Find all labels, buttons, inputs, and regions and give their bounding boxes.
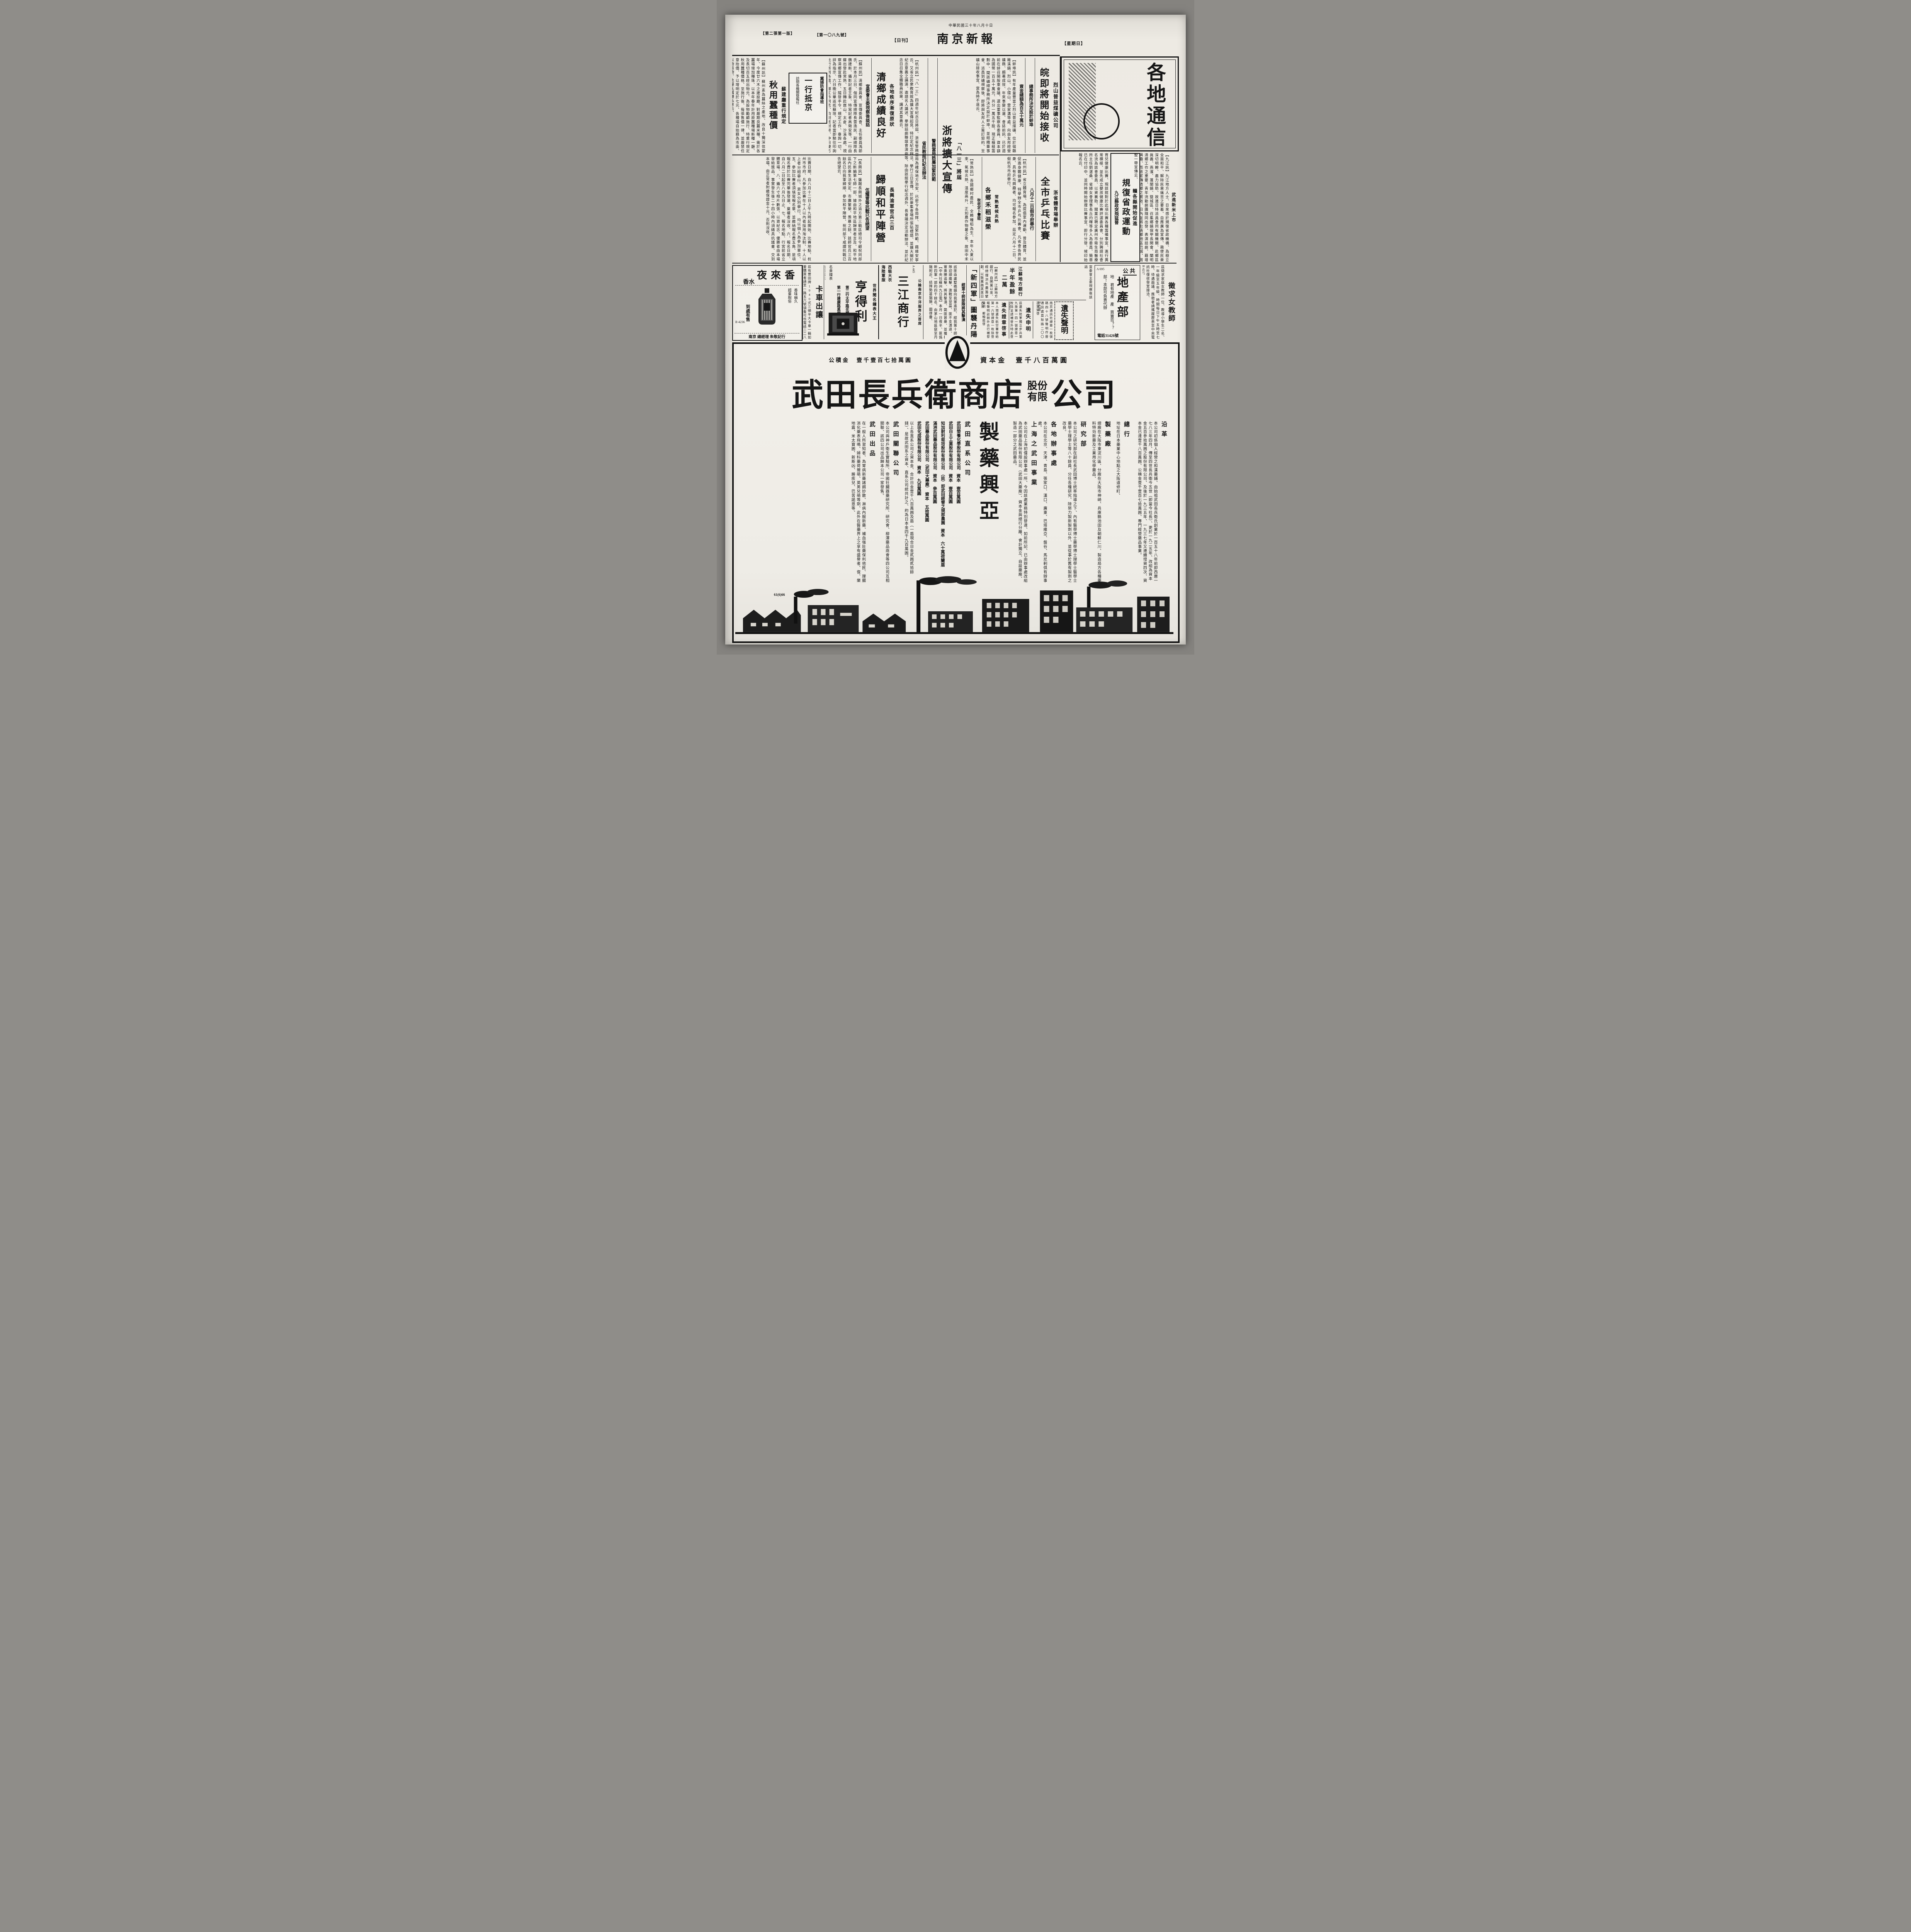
takeda-capital: 資本金 壹千八百萬圓: [980, 355, 1069, 364]
ad-yelaixiang-tagline2: 超羣脫俗: [786, 288, 792, 303]
ad-teacher-title: 徵求女教師: [1166, 265, 1177, 339]
ad-truck-body: 茲有豐田牌1940式三頓半大卡車一輛如要購買者請至□路五六號領看可也電話二二八二…: [803, 265, 812, 339]
ad-lost1: 南京通訊社證章一枚號碼四十八號聲明作廢 通訊處莫愁路二〇〇 孫寶榮啓 B 428…: [1033, 301, 1053, 338]
ad-teacher: 徵求女教師 茲徵求家庭女教師一位、教導小學生二名、一年級至五年級、時間每日下午五…: [1141, 265, 1177, 339]
ad-lost3: 遺失證章啓事 本人現遺失航空署發給第一六號證章一枚除登報聲明註銷外合行補發聲明 …: [979, 301, 1007, 338]
perfume-bottle-icon: [755, 287, 779, 326]
takeda-section-products: 武田出品 在一般人所習知者、為胃病新藥諸餌妙散、淋病內服新藥、補血强壯藥保利他民…: [850, 421, 876, 583]
hebei-box-line2: 一行抵京: [802, 77, 813, 112]
article-newfourth-body: 該匪由盧墅橋鎮向我軍進犯、經我第十師部隊迎頭痛擊、激戰至翌晨、匪不支潰退、我軍乘…: [944, 265, 957, 339]
ad-lost1-title-box: 遺失聲明: [1054, 301, 1074, 340]
article-coal-kicker: 烈山普益煤礦公司: [1052, 58, 1059, 153]
takeda-related-title: 武田關聯公司: [892, 421, 900, 583]
article-qingxiang-subhead: 宣委會主委視察後談話: [864, 58, 872, 153]
article-coal-subhead-1: 總事務所決定設於蚌埠: [1027, 58, 1035, 153]
article-aug13-subhead-1: 警務當局飭屬加緊防範: [930, 58, 938, 262]
takeda-calligraphy: 製藥興亞: [973, 421, 1002, 583]
daily-tag: 【日刊】: [892, 37, 911, 43]
ad-yelaixiang: 夜來香 香水 香味幽久 超羣脫俗 到處有售 B 4236 南京 總經理 朱敬記行: [732, 265, 802, 341]
article-pingpong: 浙省體育場舉辦 全市乒乓比賽 八月十二日假市府舉行 【杭州訊】省立體育場、為提倡…: [964, 157, 1059, 261]
article-aug13-subhead-2: 省民教館訂紀念辦法: [920, 58, 928, 262]
article-changxing-subhead: 伍耀萱等抗戰已告絕望: [863, 157, 871, 261]
article-changshu-kicker: 常熟氣候炎熱: [993, 157, 999, 261]
article-silkworm-kicker: 蘇建廳重行規定: [780, 58, 787, 153]
takeda-title-stack1: 股份: [1027, 381, 1047, 392]
article-qingxiang-kicker: 各地秩序漸復原狀: [889, 58, 895, 153]
article-jiangxi: 武進新米上市 【九江訊】九江地方人士、日來感於規復省政機構、為樹立全面和平、解除…: [1061, 153, 1177, 262]
article-changshu-body: 【常熟訊】吾國鄉村農民、全賴種稻為生、本年入夏以來、氣候炎熱、溫度高升、正如農作…: [964, 157, 973, 261]
lost-row-rule: [979, 300, 1086, 300]
factory-skyline-illustration: [735, 576, 1173, 638]
date-line: 中華民國三十年八月十日: [949, 22, 993, 28]
ad-estate-question: 地 君有地產 產 買賣否？？: [1109, 275, 1114, 330]
ad-lost1-title: 遺失聲明: [1059, 304, 1069, 334]
takeda-hq-title: 總行: [1122, 421, 1131, 583]
ad-sanjiang: 公論南京市洋服界之首席 A 445 三江商行 西裝大衣 海陸軍服 時裝婦女裝 專…: [878, 265, 922, 339]
takeda-title-tail: 公司: [1051, 369, 1117, 415]
article-aug13-body: 【杭州訊】「八一三」四週年紀念日將屆、浙省警務當局為確保地方治安、已密令各局隊、…: [897, 58, 918, 262]
ad-yelaixiang-product: 香水: [743, 277, 755, 286]
takeda-company-row: 滿洲武田藥品股份有限公司 資本 參百萬圓: [931, 421, 937, 583]
article-qingxiang-body: 【蘇州訊】清鄉委員會、宣傳委員會、主任委員馮節氏、於本月三日、偕同宣傳總隊長雷逸…: [829, 58, 862, 153]
ad-teacher-body: 茲徵求家庭女教師一位、教導小學生二名、一年級至五年級、時間每日下午五時至七時、待…: [1147, 265, 1165, 339]
ads-band-rule: [732, 263, 1177, 264]
ad-sanjiang-code: A 445: [912, 265, 916, 339]
takeda-section-history: 沿革 本公司初係個人經營之和漢藥鋪、由始祖武田長兵衛氏創業於一百五十八年前即西曆…: [1133, 421, 1168, 583]
article-rice-kicker: 武進新米上市: [1170, 153, 1177, 262]
jiangxi-continuation-text: 宣委會主委視察後談話: [1078, 265, 1093, 299]
masthead: 南京新報: [937, 29, 996, 46]
takeda-direct-title: 武田直系公司: [963, 421, 971, 583]
ad-sanjiang-line1: 西裝大衣: [887, 265, 892, 339]
article-qingxiang-headline: 清鄉成績良好: [873, 58, 887, 153]
section-banner-box: 各地通信: [1061, 56, 1179, 151]
banner-circle-decoration: [1083, 103, 1120, 139]
takeda-history-title: 沿革: [1160, 421, 1168, 583]
article-bank-headline: 半年盈餘二萬: [1000, 265, 1015, 298]
article-coal-subhead-2: 資金總額為百五十萬元: [1017, 58, 1025, 153]
article-pingpong-headline: 全市乒乓比賽: [1037, 157, 1051, 261]
table-clock-icon: [826, 307, 860, 338]
takeda-title-row: 武田長兵衛商店 股份 有限 公司: [741, 369, 1168, 415]
takeda-section-shanghai: 上海之武田事業 本公司在上海初僅設辦事處一所、今因該處業務特別發達、如前所記、已…: [1012, 421, 1038, 583]
newspaper-scan: 中華民國三十年八月十日 南京新報 【日刊】 【星期日】 【第一〇八九號】 【第二…: [717, 0, 1194, 655]
takeda-section-related: 武田關聯公司 本公司與神戶衛生實驗所、帝國社臟器藥研究所、研究會、柳澤藥品商會等…: [879, 421, 900, 583]
takeda-shanghai-text: 本公司在上海初僅設辦事處一所、今因該處業務特別發達、如前所記、已由辦事處改組為武…: [1012, 421, 1027, 583]
ad-sanjiang-line3: 時裝婦女裝: [878, 265, 879, 339]
article-changshu-headline: 各鄉禾稻滋榮: [984, 157, 992, 261]
takeda-products-text: 在一般人所習知者、為胃病新藥諸餌妙散、淋病內服新藥、補血强壯藥保利他民、理腸消化…: [850, 421, 866, 583]
article-rules-continuation: 比賽日期、自八月十二日上午九時起開始、比賽地點、杭州市市府、凡參加比賽在十人以內…: [732, 157, 811, 261]
header-rule: [732, 55, 1060, 56]
ad-truck-title: 卡車出讓: [813, 265, 824, 339]
ad-yelaixiang-availability: 到處有售: [745, 304, 751, 321]
article-newfourth-subhead: 經第十師部隊將其擊潰: [959, 265, 967, 339]
banner-bottom-rule: [1061, 151, 1177, 151]
takeda-products-title: 武田出品: [868, 421, 876, 583]
article-silkworm: 蘇建廳重行規定 秋用蠶種價 【蘇州訊】蘇州素為蠶絲之產地、改良十獨深信蒙年、今度…: [732, 58, 787, 153]
ad-hendeli-service2: 包羅萬象: [825, 265, 826, 339]
edition-label: 【第二張第一版】: [761, 30, 795, 36]
ad-hendeli-kicker: 世界聞名鐘表大王: [871, 265, 877, 339]
article-hebei-box: 冀婦防會指導班 一行抵京 訪問各機關曁報社: [789, 73, 827, 124]
article-changxing-body: 【長興訊】盤踞長興城外之渝方第三戰區總司令顧祝同部下之新編第七師一部、據由和平地…: [825, 157, 862, 261]
ad-estate-phone: 電話31426號: [1097, 332, 1119, 338]
article-pingpong-kicker: 浙省體育場舉辦: [1052, 157, 1059, 261]
article-qingxiang: 各地秩序漸復原狀 清鄉成績良好 宣委會主委視察後談話 【蘇州訊】清鄉委員會、宣傳…: [829, 58, 895, 153]
takeda-offices-title: 各地辦事處: [1049, 421, 1058, 583]
ad-estate-top: 公共: [1123, 267, 1137, 276]
article-coal: 烈山普益煤礦公司 皖即將開始接收 總事務所決定設於蚌埠 資金總額為百五十萬元 【…: [964, 58, 1059, 153]
article-changshu-subhead: 秋收定卜豐稔: [975, 157, 982, 261]
newfourth-lead-text: 【中央社蘇州九日電】本月一日夜半、匪僞新四軍一部約四千餘名、由茅山地區竄至丹陽附…: [926, 265, 943, 339]
takeda-company-row: 武田化成股份有限公司 資本 九百萬圓: [916, 421, 921, 583]
article-bank: 江蘇地方銀行 半年盈餘二萬 【蘇州訊】江蘇地方銀行、自開業以來、經總理洪氏盡籌擘…: [979, 265, 1023, 298]
weekday-tag: 【星期日】: [1062, 40, 1085, 46]
article-bank-body: 【蘇州訊】江蘇地方銀行、自開業以來、經總理洪氏盡籌擘劃、以致業務蒸蒸日上、貢獻良…: [979, 265, 998, 298]
takeda-hq-text: 地址在日本藥業中心地點之大阪道修町、: [1114, 421, 1120, 583]
ad-yelaixiang-code: B 4236: [735, 320, 745, 324]
hebei-box-line3: 訪問各機關曁報社: [795, 77, 800, 104]
ad-estate-big: 地產部: [1113, 276, 1130, 320]
article-newfourth-lead: 【中央社蘇州九日電】本月一日夜半、匪僞新四軍一部約四千餘名、由茅山地區竄至丹陽附…: [923, 265, 943, 339]
takeda-section-direct: 武田直系公司 武田榮養化學股份有限公司 資本 壹百萬圓 武田白土工業股份有限公司…: [902, 421, 971, 583]
article-aug13-headline: 浙將擴大宣傳: [939, 58, 954, 262]
article-aug13: 「八一三」將屆 浙將擴大宣傳 警務當局飭屬加緊防範 省民教館訂紀念辦法 【杭州訊…: [897, 58, 962, 262]
ad-yelaixiang-tagline1: 香味幽久: [792, 288, 798, 303]
takeda-section-research: 研究部 本公司之研究部在副社長武田博士統率指導之下、內有醫學博士藥學博士理學士醫…: [1060, 421, 1087, 583]
takeda-title-stack2: 有限: [1027, 392, 1047, 403]
takeda-body: 沿革 本公司初係個人經營之和漢藥鋪、由始祖武田長兵衛氏創業於一百五十八年前即西曆…: [741, 421, 1168, 583]
article-changxing-kicker: 長興渝軍官兵三百: [889, 157, 895, 261]
article-coal-headline: 皖即將開始接收: [1037, 58, 1050, 153]
ad-lost2-title: 遺失申明: [1024, 301, 1032, 338]
takeda-company-row: 知加耐利栽培股份有限公司 （註）即武田經營之規那農園 資本 六十萬荷蘭盾: [939, 421, 945, 583]
takeda-reserve: 公積金 壹千壹百七拾萬圓: [829, 356, 912, 364]
takeda-company-name: 武田長兵衛商店: [792, 369, 1024, 415]
article-jiangxi-headline: 規復省政運動: [1120, 155, 1132, 260]
takeda-direct-summary: 以上各直系公司之資本金、合計日金壹千八百萬圓及盾（一盾現合日金貳圓貳拾餘錢）、是…: [902, 421, 914, 583]
article-jiangxi-continuation: 宣委會主委視察後談話: [1075, 265, 1093, 299]
ad-yelaixiang-dealer: 南京 總經理 朱敬記行: [734, 333, 799, 339]
takeda-plant-text: 總廠在大阪市東淀川區、分廠在大阪市神崎、兵庫縣池田及朝鮮仁川、製造局方各種藥料特…: [1090, 421, 1101, 583]
ad-sanjiang-kicker: 公論南京市洋服界之首席: [917, 265, 922, 339]
article-newfourth: 「新四軍」圖襲丹陽 經第十師部隊將其擊潰 該匪由盧墅橋鎮向我軍進犯、經我第十師部…: [944, 265, 978, 339]
article-aug13-kicker: 「八一三」將屆: [955, 58, 962, 262]
takeda-company-row: 武田榮養化學股份有限公司 資本 壹百萬圓: [955, 421, 961, 583]
takeda-triangle-logo-icon: [945, 335, 970, 369]
article-changxing: 長興渝軍官兵三百 歸順和平陣營 伍耀萱等抗戰已告絕望 【長興訊】盤踞長興城外之渝…: [813, 157, 895, 261]
ad-sanjiang-line2: 海陸軍服: [880, 265, 885, 339]
ad-lost2: 遺失申明 茲遺失陸軍獨立步兵第九旅第一四一號證章一枚除呈請補發外特此登報申明作廢…: [1009, 301, 1032, 338]
ad-lost1-body: 南京通訊社證章一枚號碼四十八號聲明作廢 通訊處莫愁路二〇〇 孫寶榮啓: [1043, 301, 1053, 338]
article-newfourth-headline: 「新四軍」圖襲丹陽: [968, 265, 978, 339]
ad-sanjiang-name: 三江商行: [893, 265, 910, 339]
article-bank-kicker: 江蘇地方銀行: [1017, 265, 1023, 298]
newspaper-page: 中華民國三十年八月十日 南京新報 【日刊】 【星期日】 【第一〇八九號】 【第二…: [725, 15, 1186, 645]
ad-lost3-body: 本人現遺失航空署發給第一六號證章一枚除登報聲明註銷外合行補發聲明 鄭翰庭啓: [986, 301, 999, 338]
ad-lost2-body: 茲遺失陸軍獨立步兵第九旅第一四一號證章一枚除呈請補發外特此登報申明作廢 喬起華啓: [1013, 301, 1023, 338]
takeda-history-text: 本公司初係個人經營之和漢藥鋪、由始祖武田長兵衛氏創業於一百五十八年前即西曆一七八…: [1133, 421, 1158, 583]
takeda-company-row: 武田白土工業股份有限公司 資本 壹百萬圓: [947, 421, 953, 583]
band-divider-rule: [732, 155, 1059, 155]
takeda-section-offices: 各地辦事處 本公司在北京、天津、青島、張家口、漢口、廣東、巴塔維亞、盤谷、馬尼剌…: [1040, 421, 1058, 583]
ad-truck: 卡車出讓 茲有豐田牌1940式三頓半大卡車一輛如要購買者請至□路五六號領看可也電…: [802, 265, 824, 339]
ad-yelaixiang-name: 夜來香: [757, 267, 799, 282]
takeda-section-hq: 總行 地址在日本藥業中心地點之大阪道修町、: [1114, 421, 1131, 583]
takeda-offices-text: 本公司在北京、天津、青島、張家口、漢口、廣東、巴塔維亞、盤谷、馬尼剌俱有辦事處。: [1040, 421, 1047, 583]
article-silkworm-body: 【蘇州訊】蘇州素為蠶絲之產地、改良十獨深信蒙年、今度廿六木之建設廳、對嚴期良蠶米…: [732, 58, 765, 153]
article-rules-body: 比賽日期、自八月十二日上午九時起開始、比賽地點、杭州市市府、凡參加比賽在十人以內…: [735, 157, 811, 261]
issue-number: 【第一〇八九號】: [815, 32, 849, 37]
ad-estate-code: A 695: [1097, 267, 1105, 271]
takeda-shanghai-title: 上海之武田事業: [1030, 421, 1038, 583]
takeda-company-row: 武田藥品股份有限公司（武田大藥廠） 資本 五拾萬圓: [923, 421, 929, 583]
article-pingpong-body: 【杭州訊】省立體育場、為提倡室內運動、普及體育、並促進身體健康、特擧辦全市乒乓比…: [1001, 157, 1026, 261]
takeda-research-title: 研究部: [1079, 421, 1087, 583]
article-jiangxi-body-right: 【九江訊】九江地方人士、日來感於規復省政機構、為樹立全面和平、解除民衆痛苦之要着…: [1142, 153, 1169, 262]
ad-lost3-title: 遺失證章啓事: [1001, 301, 1007, 338]
takeda-section-plant: 製藥廠 總廠在大阪市東淀川區、分廠在大阪市神崎、兵庫縣池田及朝鮮仁川、製造局方各…: [1090, 421, 1112, 583]
hebei-box-line1: 冀婦防會指導班: [818, 77, 824, 104]
ad-estate: A 695 公共 地產部 地 君有地產 產 買賣否？？ 部！本部可負責代辦 電話…: [1095, 265, 1140, 340]
article-silkworm-headline: 秋用蠶種價: [767, 58, 779, 153]
article-changxing-headline: 歸順和平陣營: [873, 157, 887, 261]
article-coal-body: 【蚌埠訊】有年產量豐富之烈山普益煤礦、位於宿縣雎溪鎮、烈山、小環山、雷家溝等處、…: [969, 58, 1016, 153]
article-health-body: 育兒健康比賽、現該館對於此項比賽各種籌備事宜、進行異常積極、並先成立嬰孩健康比賽…: [1074, 153, 1108, 262]
ad-estate-answer: 部！本部可負責代辦: [1102, 275, 1107, 310]
takeda-related-text: 本公司與神戶衛生實驗所、帝國社臟器藥研究所、研究會、柳澤藥品商會等四公司互相關聯…: [879, 421, 889, 583]
article-jiangxi-subhead: 九江縣政突飛猛晉: [1112, 155, 1120, 260]
article-pingpong-subhead: 八月十二日假市府舉行: [1028, 157, 1036, 261]
section-banner-title: 各地通信: [1145, 62, 1165, 149]
takeda-plant-title: 製藥廠: [1103, 421, 1112, 583]
takeda-research-text: 本公司之研究部在副社長武田博士統率指導之下、內有醫學博士藥學博士理學士醫學士藥學…: [1060, 421, 1077, 583]
